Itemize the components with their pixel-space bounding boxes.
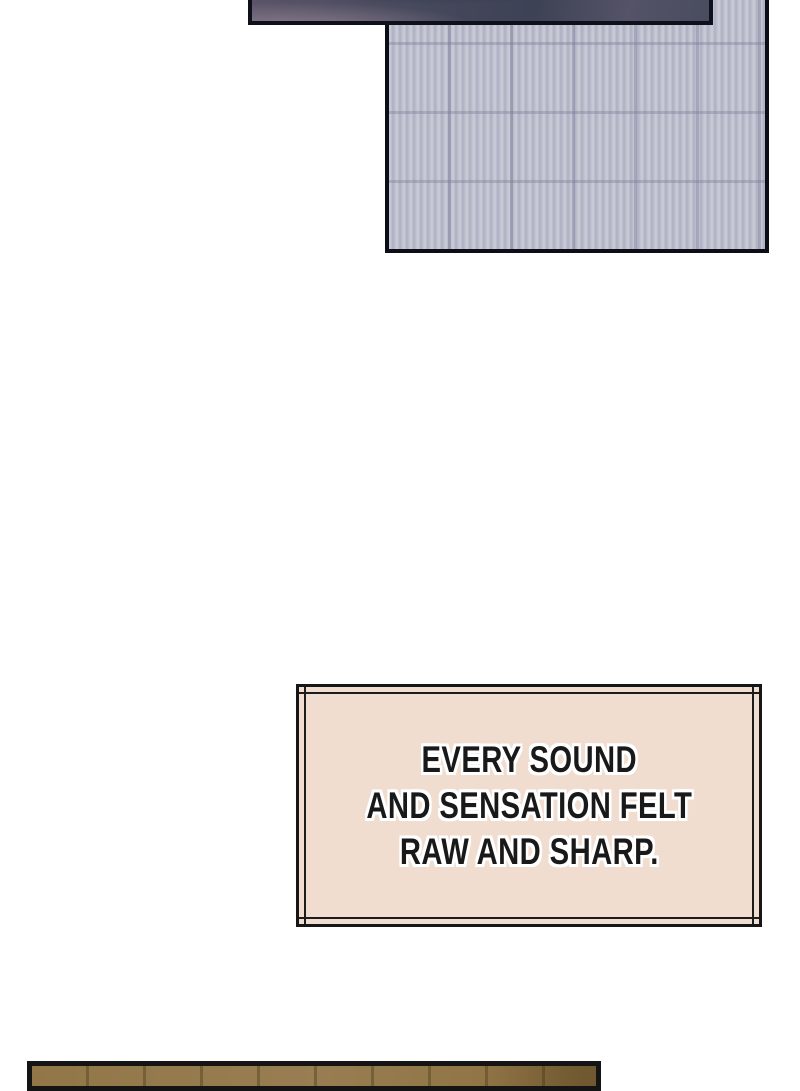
- narration-text-container: EVERY SOUND AND SENSATION FELT RAW AND S…: [299, 687, 759, 924]
- narration-text: EVERY SOUND AND SENSATION FELT RAW AND S…: [366, 737, 692, 875]
- panel-dark-sky: [248, 0, 713, 25]
- narration-line-3: RAW AND SHARP.: [366, 829, 692, 875]
- webtoon-page: EVERY SOUND AND SENSATION FELT RAW AND S…: [0, 0, 800, 1080]
- panel-corrugated-wall: [385, 0, 769, 253]
- panel-wood-floor: [27, 1061, 601, 1091]
- narration-line-2: AND SENSATION FELT: [366, 783, 692, 829]
- narration-caption-box: EVERY SOUND AND SENSATION FELT RAW AND S…: [296, 684, 762, 927]
- narration-line-1: EVERY SOUND: [366, 737, 692, 783]
